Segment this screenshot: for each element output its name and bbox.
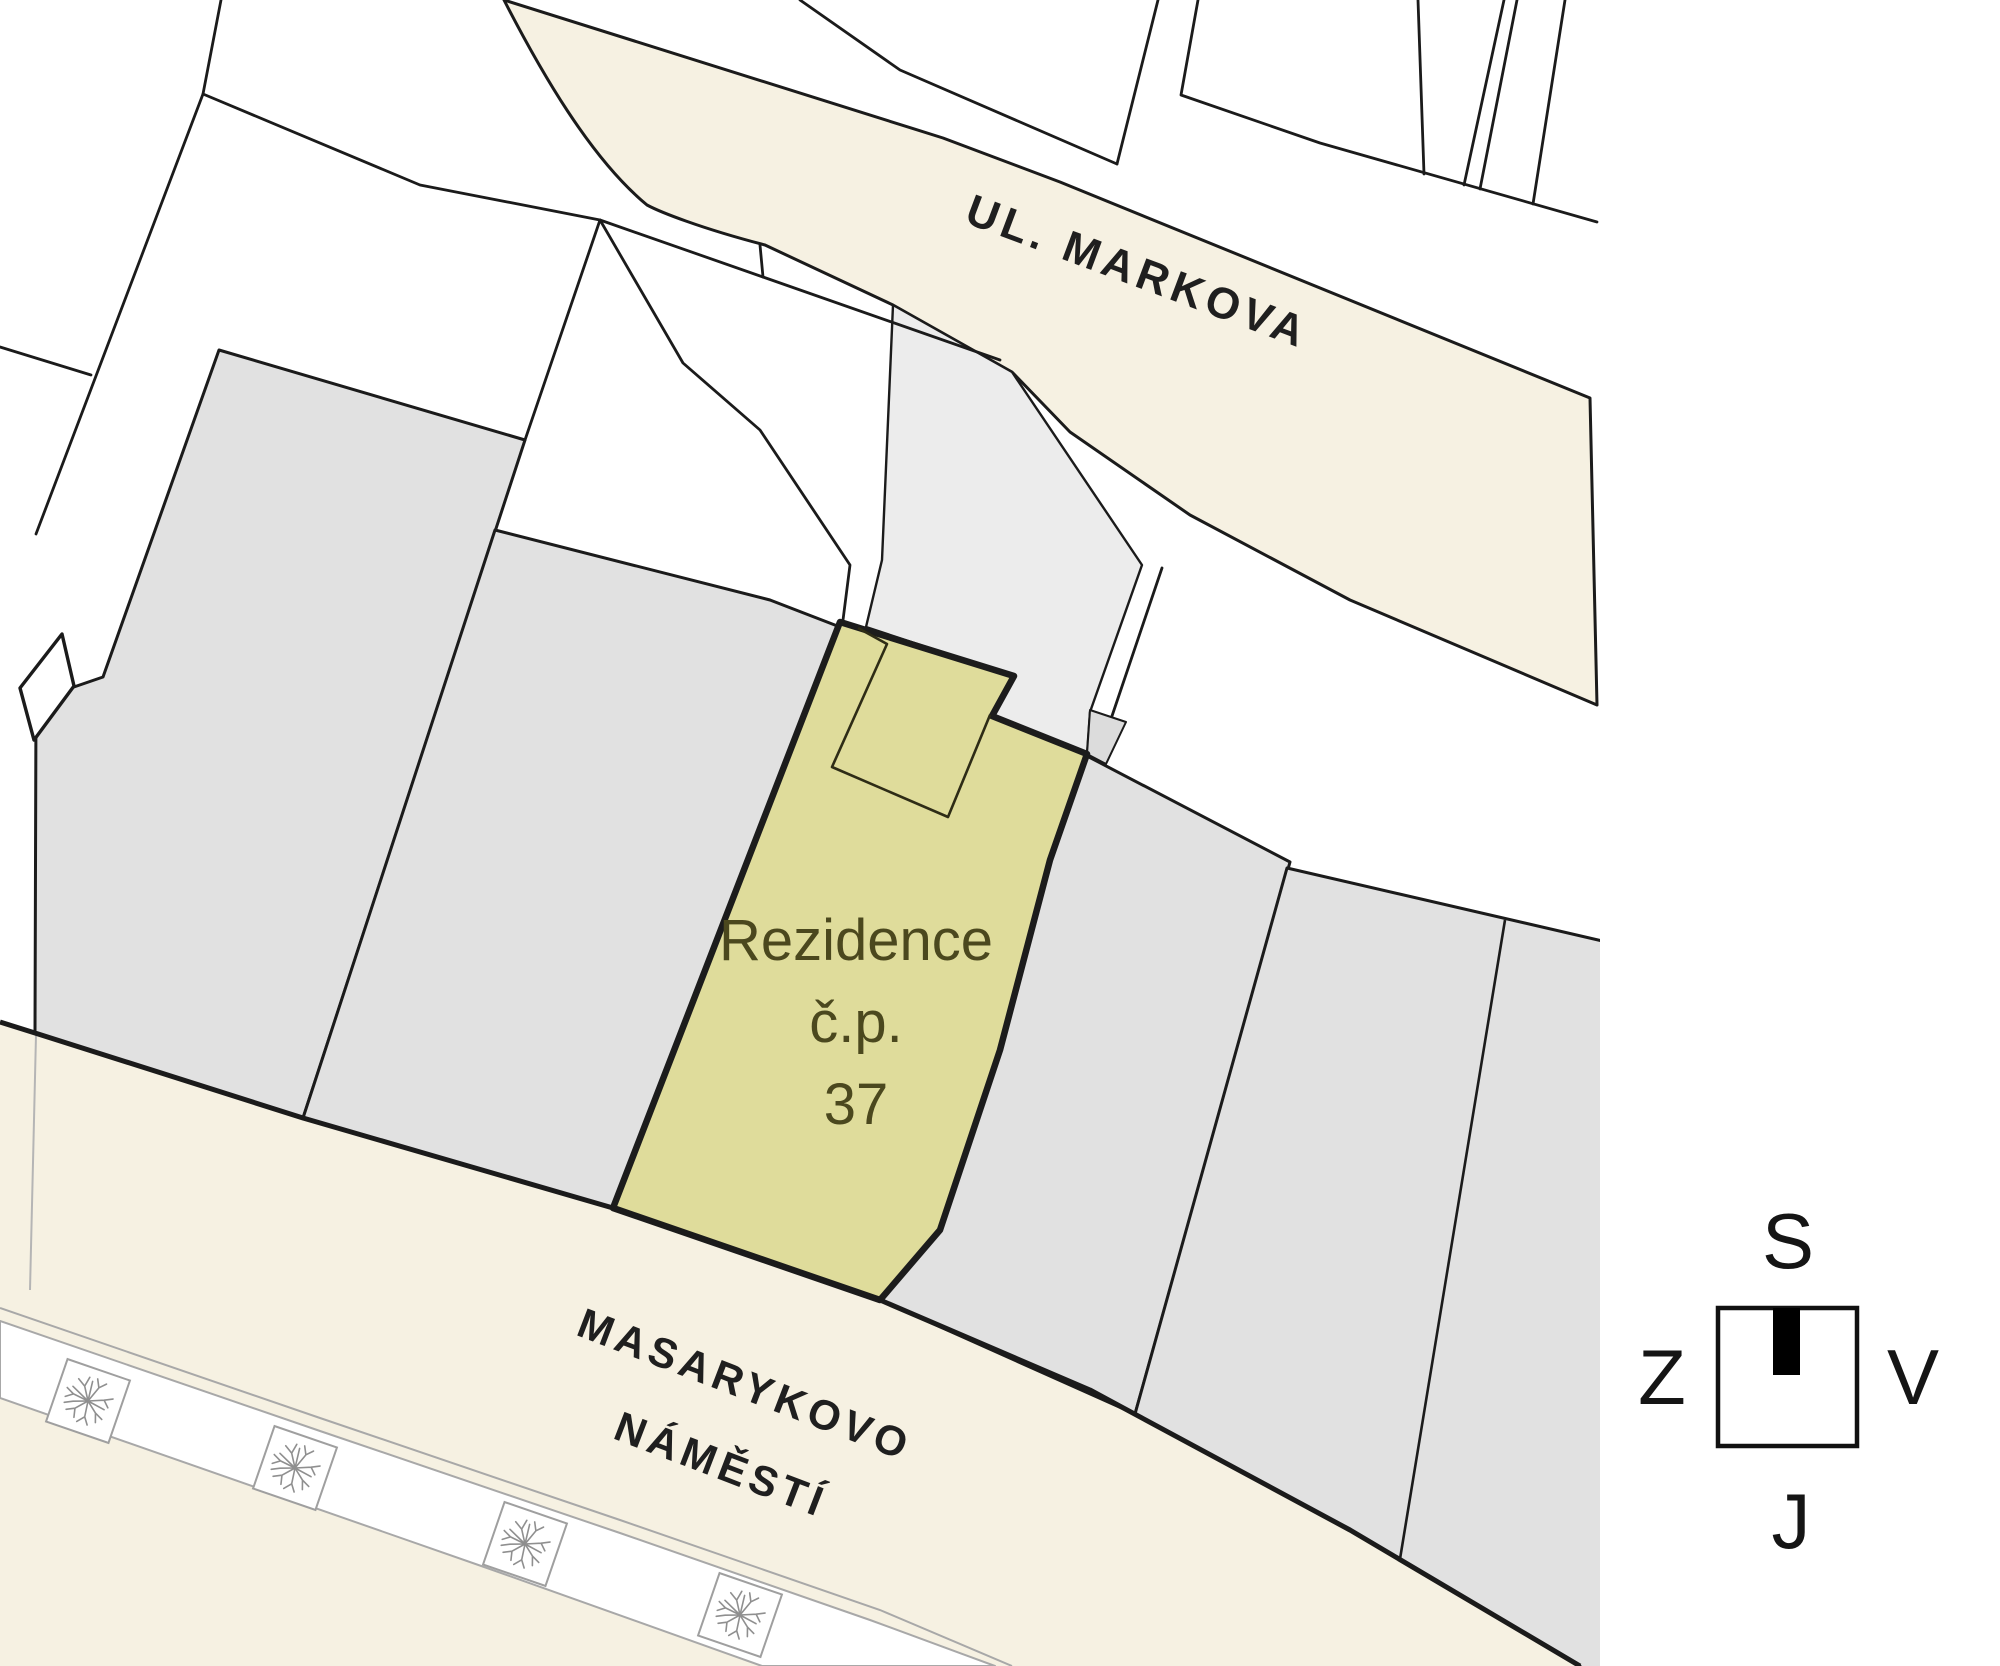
compass-south-label: J	[1772, 1477, 1811, 1565]
parcel-gray-small	[1087, 710, 1126, 764]
compass-west-label: Z	[1638, 1333, 1686, 1421]
compass-east-label: V	[1887, 1333, 1939, 1421]
compass-north-label: S	[1762, 1197, 1814, 1285]
site-plan-page: UL. MARKOVA MASARYKOVO NÁMĚSTÍ Rezidence…	[0, 0, 2000, 1666]
highlight-label-line3: 37	[824, 1072, 889, 1137]
compass-north-bar	[1773, 1308, 1800, 1375]
highlight-label-line1: Rezidence	[719, 908, 993, 973]
highlight-label-line2: č.p.	[809, 990, 903, 1055]
compass-rose: S Z V J	[1638, 1197, 1939, 1565]
site-plan-map: UL. MARKOVA MASARYKOVO NÁMĚSTÍ Rezidence…	[0, 0, 2000, 1666]
